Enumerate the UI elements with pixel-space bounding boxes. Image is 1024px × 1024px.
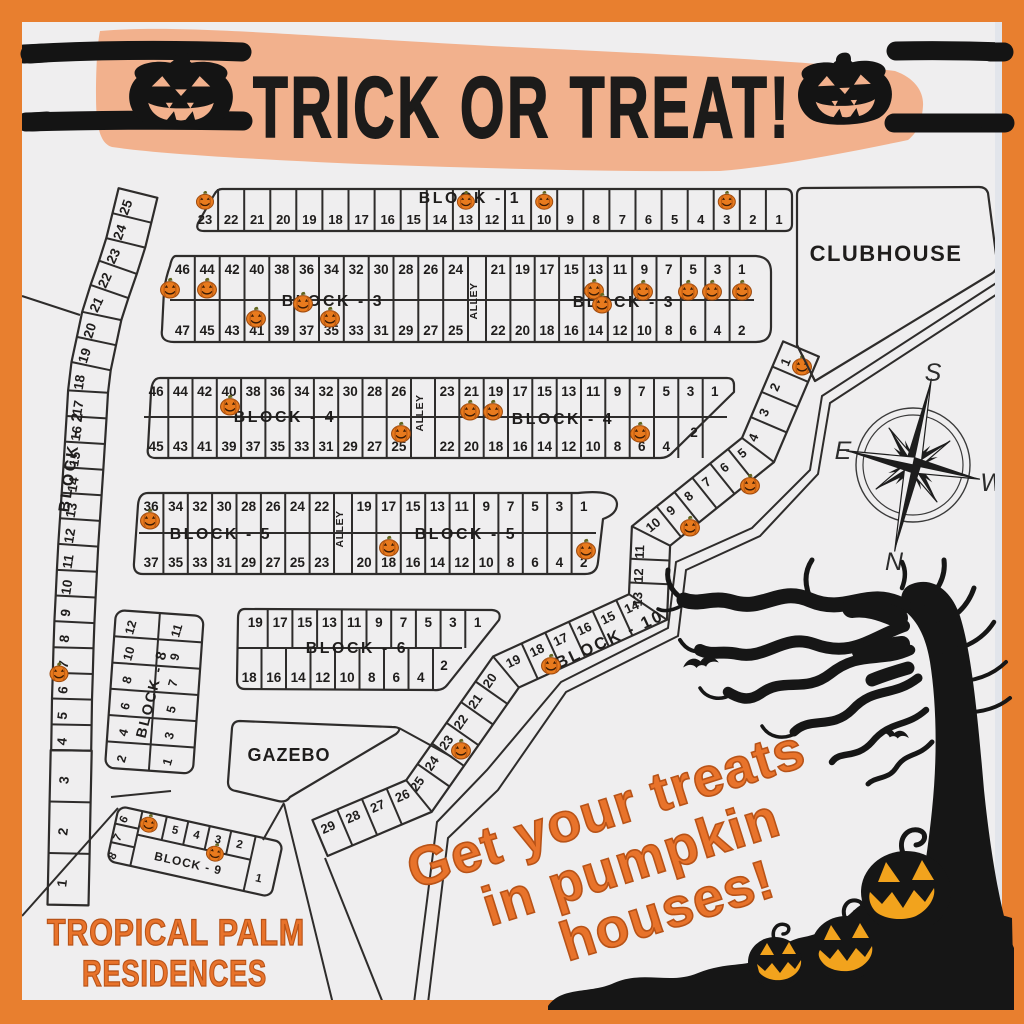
svg-text:CLUBHOUSE: CLUBHOUSE — [810, 241, 963, 266]
svg-text:7: 7 — [638, 384, 646, 399]
svg-text:BLOCK - 5: BLOCK - 5 — [415, 526, 517, 543]
svg-text:33: 33 — [349, 323, 365, 338]
svg-text:20: 20 — [464, 439, 479, 454]
svg-text:10: 10 — [58, 579, 75, 596]
svg-text:17: 17 — [539, 262, 554, 277]
svg-text:S: S — [925, 359, 942, 387]
svg-text:42: 42 — [197, 384, 212, 399]
svg-text:6: 6 — [645, 212, 652, 227]
svg-text:22: 22 — [491, 323, 506, 338]
svg-text:31: 31 — [374, 323, 390, 338]
svg-text:12: 12 — [485, 212, 499, 227]
svg-text:29: 29 — [343, 439, 358, 454]
svg-text:17: 17 — [381, 499, 396, 514]
svg-text:28: 28 — [398, 262, 414, 277]
svg-text:45: 45 — [149, 439, 165, 454]
svg-text:3: 3 — [714, 262, 722, 277]
svg-text:11: 11 — [586, 384, 601, 399]
svg-text:19: 19 — [488, 384, 503, 399]
svg-text:14: 14 — [588, 323, 604, 338]
svg-text:16: 16 — [380, 212, 394, 227]
svg-text:8: 8 — [593, 212, 600, 227]
svg-text:16: 16 — [266, 670, 282, 685]
svg-text:28: 28 — [241, 499, 257, 514]
svg-text:9: 9 — [482, 499, 490, 514]
svg-text:30: 30 — [217, 499, 232, 514]
svg-text:11: 11 — [347, 615, 362, 630]
svg-text:4: 4 — [417, 670, 425, 685]
svg-text:32: 32 — [318, 384, 333, 399]
svg-text:37: 37 — [144, 555, 159, 570]
svg-text:18: 18 — [488, 439, 504, 454]
svg-text:39: 39 — [221, 439, 236, 454]
svg-text:8: 8 — [507, 555, 515, 570]
svg-text:16: 16 — [405, 555, 421, 570]
svg-text:23: 23 — [314, 555, 330, 570]
svg-text:8: 8 — [368, 670, 376, 685]
svg-text:38: 38 — [274, 262, 290, 277]
svg-text:44: 44 — [173, 384, 189, 399]
svg-text:10: 10 — [586, 439, 601, 454]
svg-text:29: 29 — [398, 323, 413, 338]
svg-text:ALLEY: ALLEY — [334, 511, 346, 548]
svg-text:38: 38 — [246, 384, 262, 399]
svg-text:7: 7 — [507, 499, 515, 514]
svg-text:2: 2 — [738, 323, 746, 338]
svg-text:4: 4 — [714, 323, 722, 338]
svg-text:22: 22 — [224, 212, 238, 227]
svg-text:15: 15 — [406, 212, 420, 227]
svg-text:1: 1 — [580, 499, 588, 514]
svg-text:40: 40 — [249, 262, 264, 277]
svg-text:17: 17 — [513, 384, 528, 399]
svg-text:33: 33 — [192, 555, 208, 570]
svg-text:14: 14 — [291, 670, 307, 685]
svg-text:3: 3 — [556, 499, 564, 514]
svg-text:11: 11 — [632, 545, 647, 559]
svg-text:12: 12 — [561, 439, 576, 454]
svg-text:16: 16 — [564, 323, 580, 338]
svg-text:BLOCK - 4: BLOCK - 4 — [512, 411, 614, 428]
svg-text:36: 36 — [299, 262, 315, 277]
svg-text:4: 4 — [556, 555, 564, 570]
svg-text:5: 5 — [531, 499, 539, 514]
svg-text:31: 31 — [318, 439, 334, 454]
svg-text:21: 21 — [250, 212, 264, 227]
svg-text:26: 26 — [423, 262, 439, 277]
svg-text:18: 18 — [539, 323, 555, 338]
svg-text:18: 18 — [381, 555, 397, 570]
svg-text:18: 18 — [242, 670, 258, 685]
svg-text:21: 21 — [491, 262, 507, 277]
svg-text:3: 3 — [449, 615, 457, 630]
svg-text:13: 13 — [430, 499, 446, 514]
svg-text:2: 2 — [440, 658, 448, 673]
svg-text:20: 20 — [276, 212, 290, 227]
svg-text:37: 37 — [299, 323, 314, 338]
svg-text:29: 29 — [241, 555, 256, 570]
svg-text:5: 5 — [689, 262, 697, 277]
svg-text:42: 42 — [225, 262, 240, 277]
svg-text:11: 11 — [511, 212, 525, 227]
svg-text:26: 26 — [391, 384, 407, 399]
svg-text:9: 9 — [375, 615, 383, 630]
svg-text:35: 35 — [270, 439, 286, 454]
svg-text:1: 1 — [711, 384, 719, 399]
svg-text:34: 34 — [168, 499, 184, 514]
svg-text:12: 12 — [631, 568, 646, 583]
svg-text:26: 26 — [266, 499, 282, 514]
svg-text:ALLEY: ALLEY — [468, 283, 480, 320]
svg-text:10: 10 — [637, 323, 652, 338]
svg-text:25: 25 — [448, 323, 464, 338]
svg-text:2: 2 — [690, 425, 698, 440]
svg-text:BLOCK - 6: BLOCK - 6 — [306, 640, 408, 657]
svg-text:5: 5 — [662, 384, 670, 399]
svg-text:34: 34 — [324, 262, 340, 277]
svg-text:13: 13 — [588, 262, 604, 277]
svg-text:39: 39 — [274, 323, 289, 338]
svg-text:23: 23 — [198, 212, 212, 227]
svg-text:GAZEBO: GAZEBO — [247, 745, 330, 765]
svg-text:36: 36 — [144, 499, 160, 514]
svg-text:12: 12 — [612, 323, 627, 338]
svg-text:17: 17 — [354, 212, 368, 227]
svg-text:BLOCK - 5: BLOCK - 5 — [170, 526, 272, 543]
svg-text:31: 31 — [217, 555, 233, 570]
svg-text:1: 1 — [738, 262, 746, 277]
svg-text:8: 8 — [614, 439, 622, 454]
svg-text:6: 6 — [531, 555, 539, 570]
svg-text:RESIDENCES: RESIDENCES — [82, 953, 267, 994]
svg-text:15: 15 — [297, 615, 313, 630]
svg-text:27: 27 — [266, 555, 281, 570]
svg-text:9: 9 — [614, 384, 622, 399]
svg-text:14: 14 — [537, 439, 553, 454]
svg-text:14: 14 — [430, 555, 446, 570]
svg-text:12: 12 — [315, 670, 330, 685]
svg-text:18: 18 — [328, 212, 342, 227]
svg-text:32: 32 — [349, 262, 364, 277]
svg-text:30: 30 — [343, 384, 358, 399]
svg-text:21: 21 — [464, 384, 480, 399]
svg-text:3: 3 — [687, 384, 695, 399]
svg-text:20: 20 — [515, 323, 530, 338]
svg-text:19: 19 — [515, 262, 530, 277]
svg-text:14: 14 — [433, 212, 448, 227]
svg-text:15: 15 — [405, 499, 421, 514]
svg-text:TROPICAL PALM: TROPICAL PALM — [47, 912, 305, 953]
svg-text:13: 13 — [561, 384, 577, 399]
svg-text:5: 5 — [424, 615, 432, 630]
svg-text:27: 27 — [367, 439, 382, 454]
svg-text:6: 6 — [392, 670, 400, 685]
svg-text:28: 28 — [367, 384, 383, 399]
svg-text:1: 1 — [474, 615, 482, 630]
svg-text:20: 20 — [357, 555, 372, 570]
svg-text:13: 13 — [322, 615, 338, 630]
svg-text:36: 36 — [270, 384, 286, 399]
svg-text:47: 47 — [175, 323, 190, 338]
svg-text:11: 11 — [455, 499, 470, 514]
svg-text:33: 33 — [294, 439, 310, 454]
svg-text:18: 18 — [71, 373, 88, 391]
svg-text:24: 24 — [290, 499, 306, 514]
svg-text:BLOCK - 4: BLOCK - 4 — [234, 409, 336, 426]
svg-text:7: 7 — [619, 212, 626, 227]
svg-text:E: E — [835, 437, 852, 465]
svg-text:46: 46 — [149, 384, 165, 399]
svg-text:4: 4 — [697, 212, 705, 227]
svg-text:12: 12 — [61, 527, 78, 544]
svg-text:46: 46 — [175, 262, 191, 277]
svg-text:37: 37 — [246, 439, 261, 454]
svg-text:19: 19 — [302, 212, 316, 227]
svg-text:9: 9 — [641, 262, 649, 277]
svg-text:10: 10 — [537, 212, 551, 227]
svg-text:43: 43 — [225, 323, 241, 338]
svg-text:43: 43 — [173, 439, 189, 454]
svg-text:19: 19 — [248, 615, 263, 630]
svg-text:19: 19 — [357, 499, 372, 514]
svg-text:6: 6 — [689, 323, 697, 338]
svg-text:27: 27 — [423, 323, 438, 338]
svg-text:ALLEY: ALLEY — [414, 395, 426, 432]
svg-text:16: 16 — [513, 439, 529, 454]
svg-text:22: 22 — [314, 499, 329, 514]
svg-text:41: 41 — [197, 439, 213, 454]
svg-text:10: 10 — [340, 670, 355, 685]
svg-text:32: 32 — [192, 499, 207, 514]
svg-text:3: 3 — [723, 212, 730, 227]
svg-text:5: 5 — [671, 212, 678, 227]
svg-text:11: 11 — [60, 553, 77, 570]
svg-text:1: 1 — [775, 212, 782, 227]
svg-text:45: 45 — [200, 323, 216, 338]
svg-text:7: 7 — [400, 615, 408, 630]
svg-text:2: 2 — [749, 212, 756, 227]
svg-text:34: 34 — [294, 384, 310, 399]
svg-text:17: 17 — [273, 615, 288, 630]
svg-text:44: 44 — [200, 262, 216, 277]
svg-text:12: 12 — [454, 555, 469, 570]
svg-text:35: 35 — [168, 555, 184, 570]
svg-text:7: 7 — [665, 262, 673, 277]
svg-text:8: 8 — [665, 323, 673, 338]
svg-text:11: 11 — [613, 262, 628, 277]
svg-text:15: 15 — [564, 262, 580, 277]
svg-text:4: 4 — [662, 439, 670, 454]
svg-text:30: 30 — [374, 262, 389, 277]
svg-text:9: 9 — [567, 212, 574, 227]
svg-text:15: 15 — [537, 384, 553, 399]
svg-text:25: 25 — [290, 555, 306, 570]
svg-text:10: 10 — [479, 555, 494, 570]
svg-text:24: 24 — [448, 262, 464, 277]
svg-text:13: 13 — [459, 212, 473, 227]
svg-text:23: 23 — [440, 384, 456, 399]
svg-text:22: 22 — [440, 439, 455, 454]
